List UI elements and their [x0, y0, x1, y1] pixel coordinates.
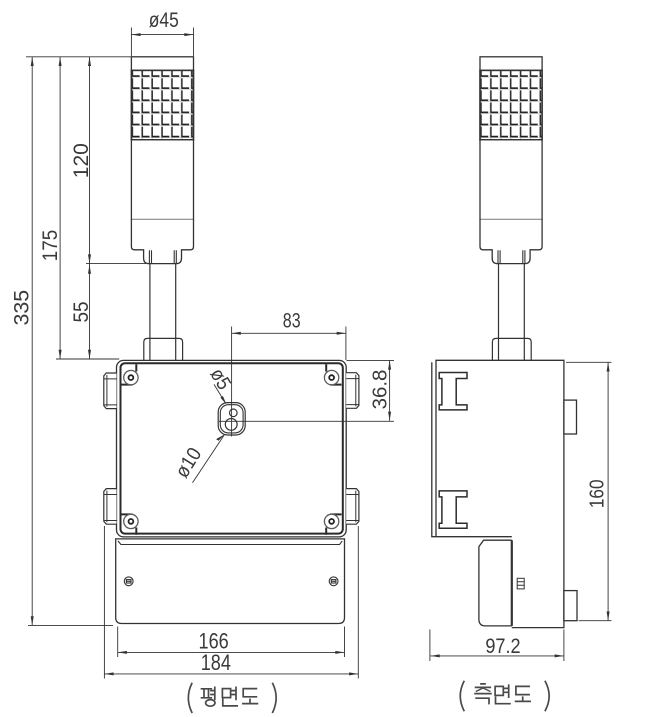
svg-text:97.2: 97.2	[485, 634, 520, 658]
svg-text:335: 335	[10, 290, 33, 326]
svg-text:160: 160	[587, 480, 609, 509]
svg-text:36.8: 36.8	[369, 370, 391, 410]
svg-text:184: 184	[201, 650, 231, 675]
svg-text:ø45: ø45	[149, 9, 179, 32]
svg-text:83: 83	[283, 310, 301, 333]
svg-text:175: 175	[39, 230, 62, 261]
svg-text:55: 55	[70, 302, 93, 323]
svg-text:120: 120	[70, 143, 93, 178]
